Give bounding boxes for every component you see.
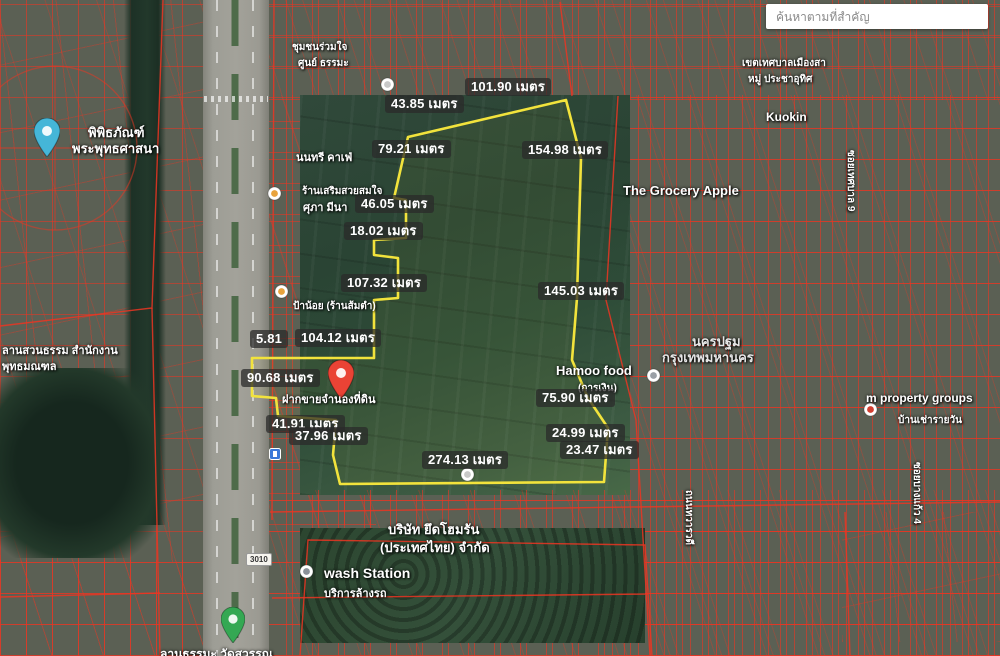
measurement-label: 145.03 เมตร bbox=[538, 282, 624, 300]
measurement-label: 101.90 เมตร bbox=[465, 78, 551, 96]
measurement-label: 24.99 เมตร bbox=[546, 424, 625, 442]
measurement-label: 23.47 เมตร bbox=[560, 441, 639, 459]
search-box bbox=[766, 4, 988, 29]
measurement-label: 75.90 เมตร bbox=[536, 389, 615, 407]
measurement-label: 5.81 bbox=[250, 330, 288, 348]
measurement-label: 90.68 เมตร bbox=[241, 369, 320, 387]
measurement-label: 43.85 เมตร bbox=[385, 95, 464, 113]
measurement-label: 107.32 เมตร bbox=[341, 274, 427, 292]
measurement-layer: 101.90 เมตร43.85 เมตร79.21 เมตร154.98 เม… bbox=[0, 0, 1000, 656]
measurement-label: 18.02 เมตร bbox=[344, 222, 423, 240]
measurement-label: 79.21 เมตร bbox=[372, 140, 451, 158]
map-canvas[interactable]: 3010 พิพิธภัณฑ์พระพุทธศาสนาลานสวนธรรม สำ… bbox=[0, 0, 1000, 656]
measurement-label: 154.98 เมตร bbox=[522, 141, 608, 159]
measurement-label: 104.12 เมตร bbox=[295, 329, 381, 347]
search-input[interactable] bbox=[766, 4, 988, 29]
measurement-label: 46.05 เมตร bbox=[355, 195, 434, 213]
measurement-label: 37.96 เมตร bbox=[289, 427, 368, 445]
measurement-label: 274.13 เมตร bbox=[422, 451, 508, 469]
